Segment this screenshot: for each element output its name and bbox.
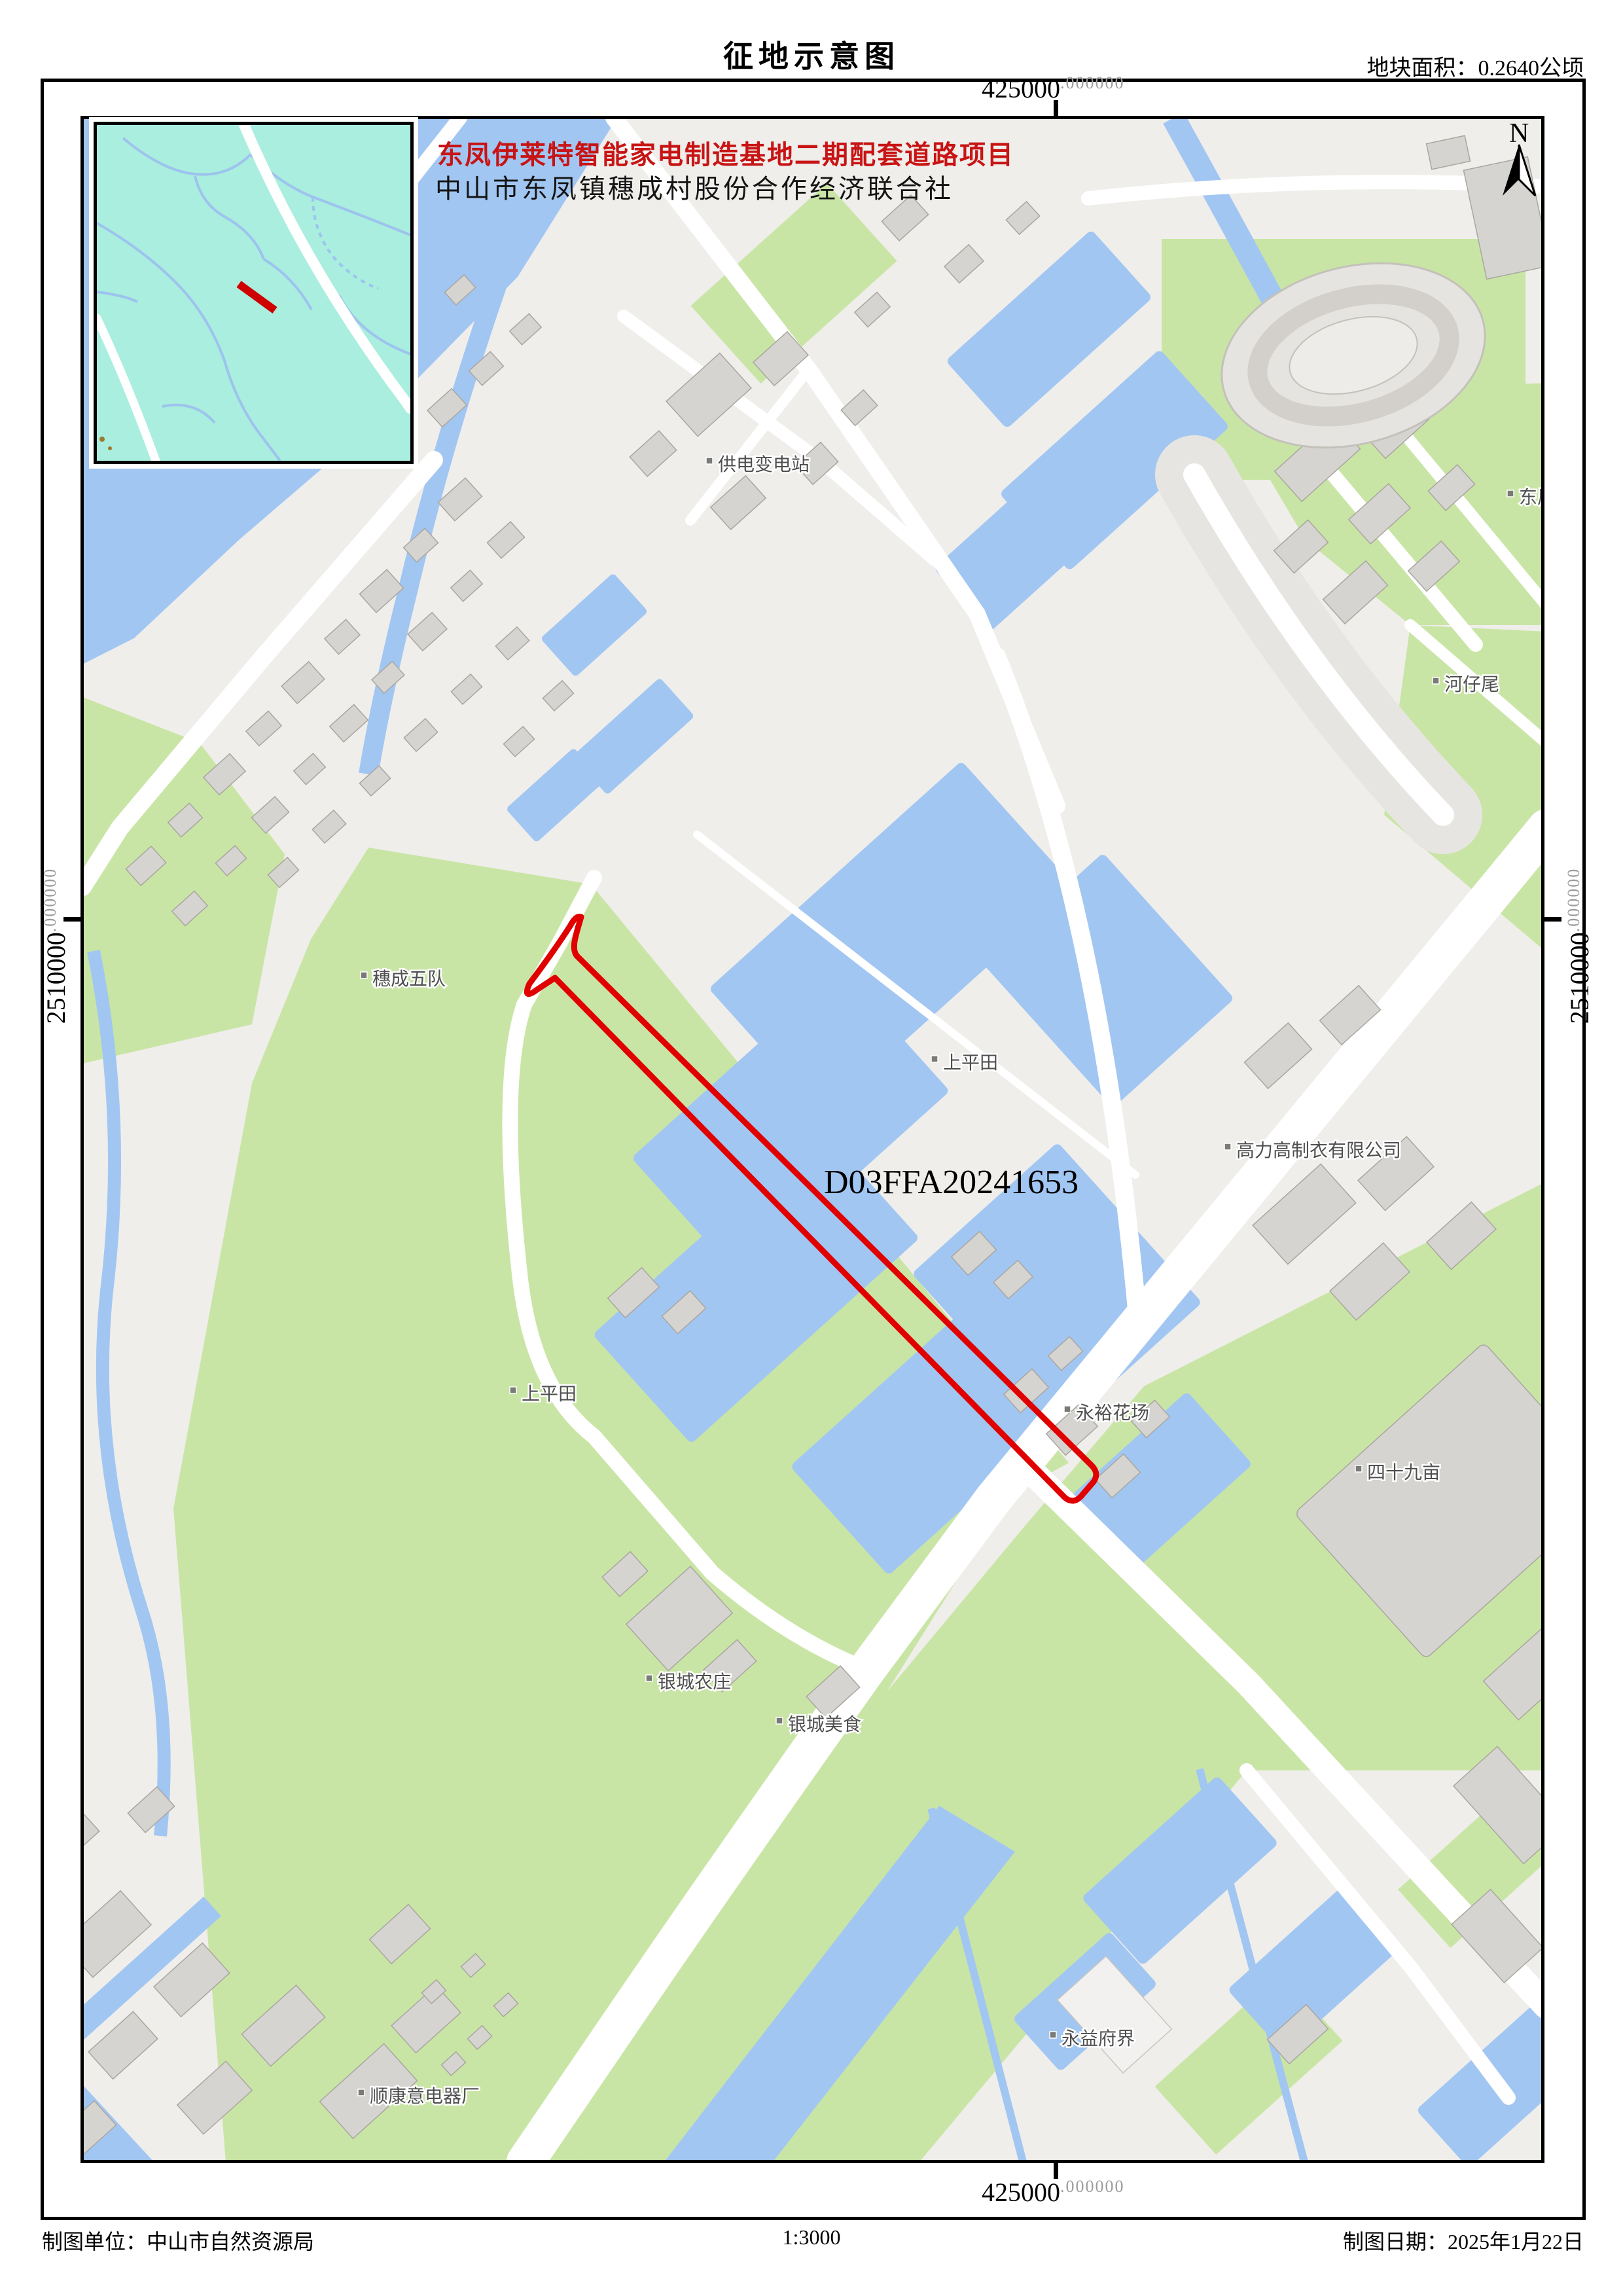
grid-label-top: 425000.000000 [982, 73, 1125, 104]
place-icon [1224, 1143, 1231, 1150]
place-icon [1433, 677, 1439, 684]
place-label: 供电变电站 [718, 454, 810, 475]
project-owner: 中山市东凤镇穗成村股份合作经济联合社 [435, 174, 954, 204]
place-label: 高力高制衣有限公司 [1236, 1140, 1401, 1160]
svg-text:N: N [1509, 119, 1529, 149]
place-label: 河仔尾 [1444, 674, 1499, 694]
project-title: 东凤伊莱特智能家电制造基地二期配套道路项目 [437, 140, 1014, 170]
place-icon [646, 1675, 652, 1681]
place-icon [1064, 1406, 1071, 1412]
grid-label-left: 2510000.000000 [41, 848, 69, 1044]
place-icon [1507, 490, 1514, 497]
place-icon [776, 1717, 783, 1724]
place-label: 穗成五队 [372, 969, 446, 989]
parcel-id-label: D03FFA20241653 [824, 1164, 1079, 1201]
place-label: 上平田 [943, 1052, 998, 1073]
place-icon [1355, 1465, 1362, 1472]
grid-label-right: 2510000.000000 [1564, 848, 1593, 1044]
inset-basemap [97, 125, 410, 461]
place-icon [1050, 2032, 1056, 2038]
place-icon [358, 2089, 365, 2096]
inset-locator-map [94, 122, 414, 464]
place-icon [361, 972, 367, 978]
grid-label-bottom: 425000.000000 [982, 2177, 1125, 2208]
place-label: 银城美食 [788, 1714, 861, 1734]
place-label: 四十九亩 [1367, 1462, 1440, 1482]
place-label: 上平田 [522, 1384, 577, 1404]
plot-area-note: 地块面积：0.2640公顷 [1367, 50, 1584, 82]
place-icon [510, 1387, 516, 1393]
place-icon [931, 1056, 938, 1062]
land-acquisition-map-document: 征地示意图 地块面积：0.2640公顷 425000.000000 425000… [0, 0, 1623, 2296]
place-label: 东凤 [1519, 487, 1541, 507]
place-label: 银城农庄 [658, 1672, 731, 1692]
place-label: 顺康意电器厂 [370, 2086, 480, 2106]
grid-tick-right [1544, 917, 1561, 922]
place-label: 永益府界 [1061, 2028, 1135, 2049]
place-label: 永裕花场 [1076, 1403, 1149, 1423]
footer-date: 制图日期：2025年1月22日 [1343, 2225, 1584, 2255]
place-icon [706, 457, 713, 464]
